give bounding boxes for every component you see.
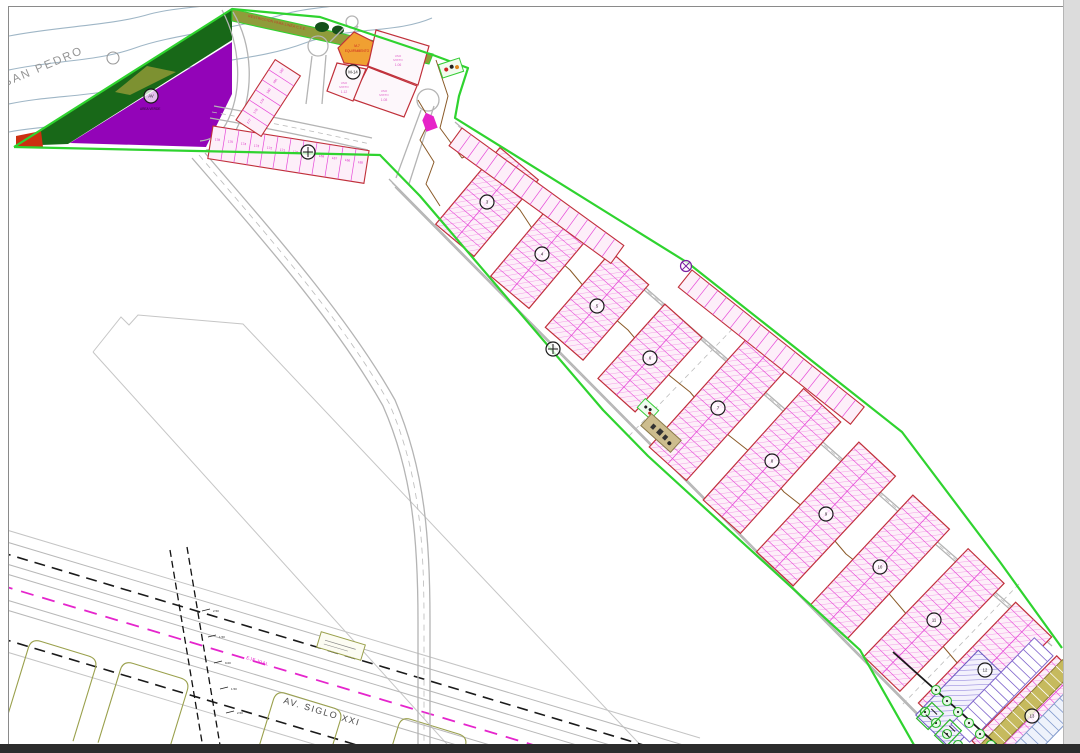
dimension-annotations: 2.501.509.001.502.50 — [170, 547, 243, 748]
svg-text:MIXTO: MIXTO — [339, 85, 349, 89]
svg-text:M-7: M-7 — [354, 44, 360, 48]
lot-number: 172 — [267, 146, 273, 151]
green-area-label: AREA VERDE — [140, 107, 160, 111]
mixed-use-parcels — [327, 30, 429, 117]
block-number-marker: 9 — [819, 507, 833, 521]
block-number-marker — [546, 342, 560, 356]
block-number-marker — [681, 261, 692, 272]
lot-number: 173 — [254, 144, 260, 149]
dimension-label: 2.50 — [237, 711, 243, 715]
tree-icon — [976, 730, 985, 739]
block-number-marker: 7 — [711, 401, 725, 415]
tree-icon — [932, 686, 941, 695]
block-number-marker: 8 — [765, 454, 779, 468]
block-number-marker — [301, 145, 315, 159]
svg-text:13: 13 — [1030, 714, 1035, 719]
plan-drawing: RIO SAN PEDRO AREA VERDE RESTRICCION PAR… — [0, 0, 1080, 753]
dimension-label: 2.50 — [213, 609, 219, 613]
tree-icon — [932, 719, 941, 728]
tree-icon — [943, 730, 952, 739]
svg-text:EQUIPAMIENTO: EQUIPAMIENTO — [345, 49, 370, 53]
lot-number: 165 — [358, 160, 364, 165]
lot-number: 167 — [332, 156, 338, 161]
block-number-marker: 5 — [590, 299, 604, 313]
block-number-marker: 6 — [643, 351, 657, 365]
lot-number: 175 — [228, 139, 234, 144]
svg-text:12: 12 — [983, 668, 988, 673]
svg-text:AV: AV — [148, 94, 153, 99]
block-number-marker: 13 — [1025, 709, 1039, 723]
block-number-marker: 12 — [978, 663, 992, 677]
river-label: RIO SAN PEDRO — [0, 45, 85, 102]
svg-text:1.08: 1.08 — [381, 98, 388, 102]
svg-text:MIXTO: MIXTO — [393, 58, 403, 62]
svg-text:M-14: M-14 — [348, 70, 358, 75]
svg-text:MIXTO: MIXTO — [379, 93, 389, 97]
block-number-marker: AV — [144, 89, 158, 103]
svg-text:1.12: 1.12 — [341, 90, 348, 94]
dimension-label: 1.50 — [219, 635, 225, 639]
block-number-marker: 4 — [535, 247, 549, 261]
tree-icon — [954, 708, 963, 717]
tree-icon — [965, 719, 974, 728]
roadside-label-box — [317, 632, 366, 661]
playground-icon — [438, 58, 463, 78]
svg-text:10: 10 — [878, 565, 883, 570]
block-number-marker: 11 — [927, 613, 941, 627]
lot-number: 174 — [241, 141, 247, 146]
dimension-label: 1.50 — [231, 687, 237, 691]
existing-parcel-outline — [93, 315, 648, 753]
red-patch — [16, 131, 43, 147]
bottom-edge-strip — [0, 744, 1080, 753]
lot-number: 166 — [345, 158, 351, 163]
lot-number: 176 — [215, 137, 221, 142]
svg-text:11: 11 — [932, 618, 937, 623]
tree-canopy-icon — [315, 22, 329, 32]
block-number-marker: 3 — [480, 195, 494, 209]
svg-text:1.06: 1.06 — [395, 63, 402, 67]
avenue-label: AV. SIGLO XXI — [282, 695, 361, 727]
lot-strip: 177178179180181182 — [236, 60, 300, 137]
right-edge-strip — [1063, 0, 1080, 744]
tree-icon — [943, 697, 952, 706]
road-axis-label: EJE VIAL — [246, 655, 270, 666]
dimension-label: 9.00 — [225, 661, 231, 665]
block-number-marker: M-14 — [346, 65, 360, 79]
tank-icon — [420, 111, 437, 132]
block-number-marker: 10 — [873, 560, 887, 574]
site-plan-screenshot: RIO SAN PEDRO AREA VERDE RESTRICCION PAR… — [0, 0, 1080, 753]
